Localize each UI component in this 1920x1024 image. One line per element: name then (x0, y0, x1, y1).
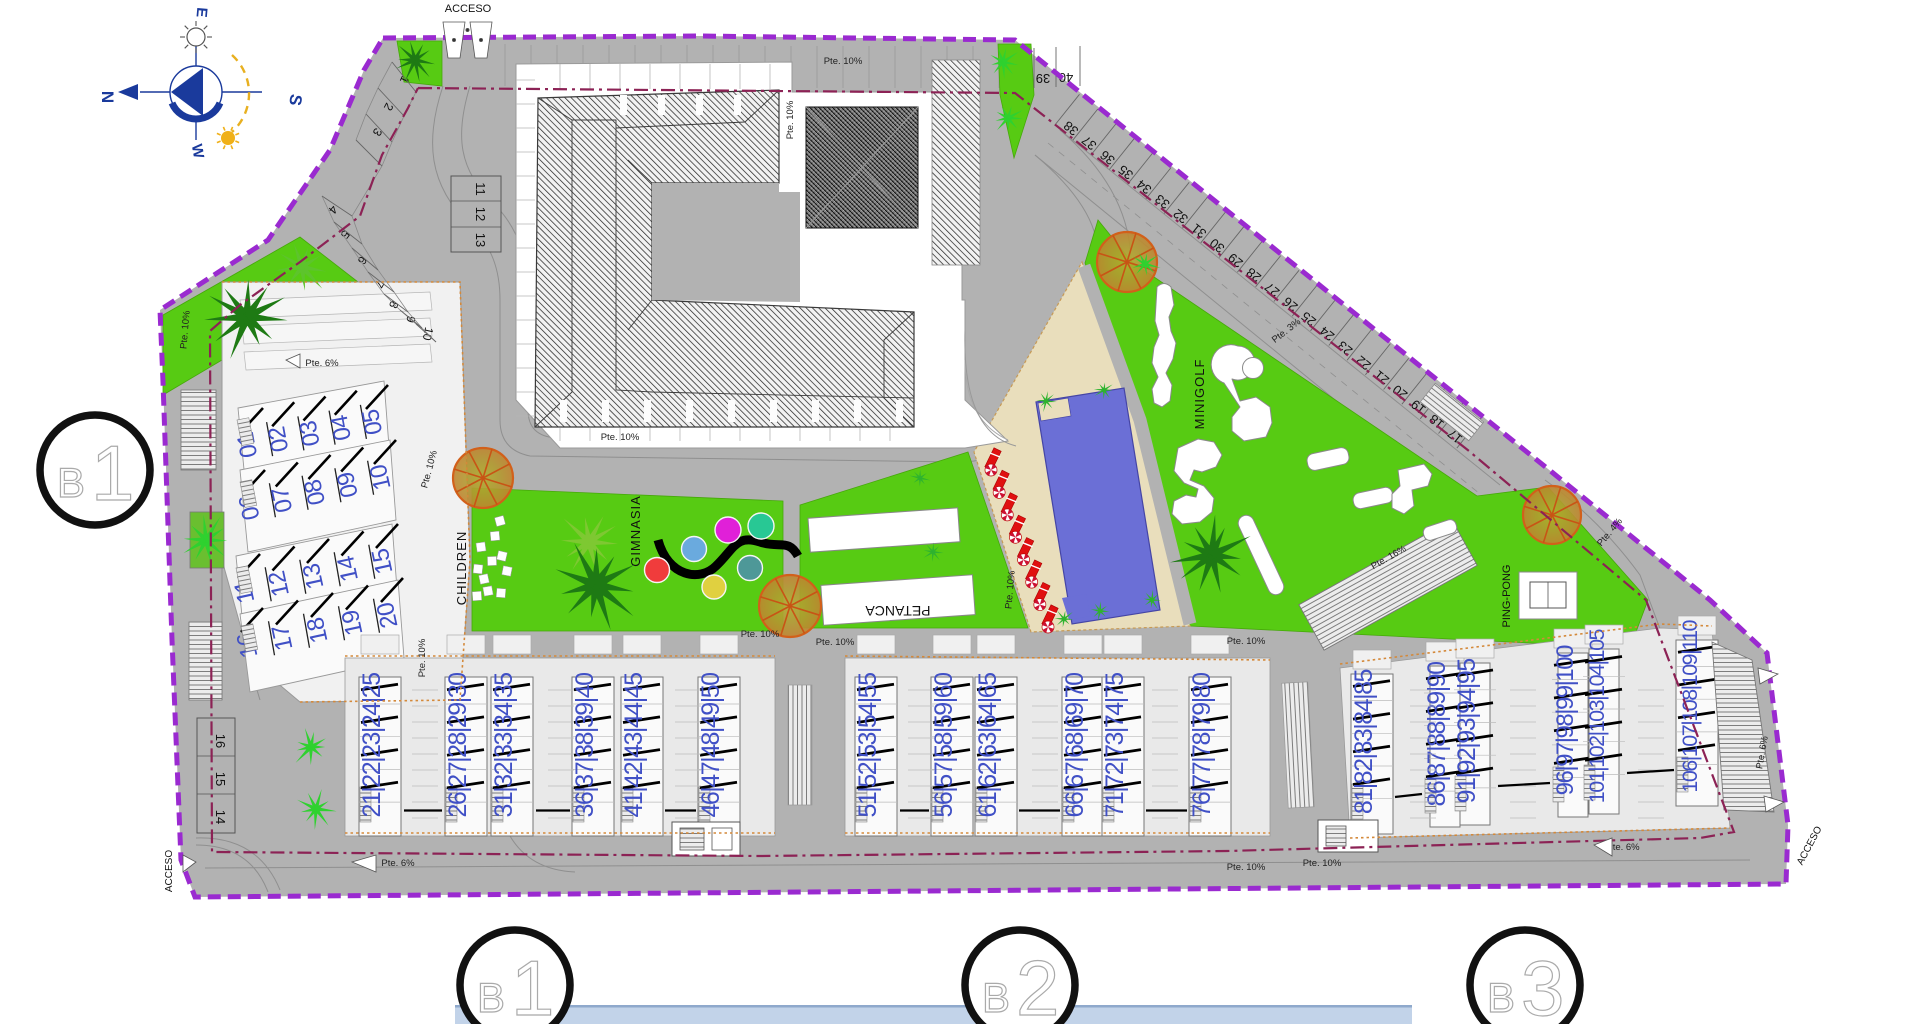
svg-text:Pte. 10%: Pte. 10% (417, 638, 428, 677)
svg-text:86|87|88|89|90: 86|87|88|89|90 (1423, 662, 1451, 807)
svg-text:16: 16 (213, 734, 228, 748)
svg-text:101|102|103|104|105: 101|102|103|104|105 (1585, 628, 1609, 803)
svg-text:Pte. 10%: Pte. 10% (824, 56, 863, 67)
svg-text:B: B (57, 459, 85, 506)
svg-text:CHILDREN: CHILDREN (454, 531, 469, 605)
svg-text:21|22|23|24|25: 21|22|23|24|25 (358, 673, 386, 818)
svg-text:3: 3 (1521, 944, 1564, 1024)
svg-text:26|27|28|29|30: 26|27|28|29|30 (444, 673, 472, 818)
svg-text:ACCESO: ACCESO (164, 850, 175, 892)
svg-text:ACCESO: ACCESO (445, 3, 492, 15)
svg-text:W: W (188, 143, 207, 161)
svg-text:61|62|63|64|65: 61|62|63|64|65 (974, 673, 1002, 818)
svg-text:B: B (477, 974, 505, 1021)
svg-text:15: 15 (213, 772, 228, 786)
svg-text:E: E (193, 7, 211, 18)
svg-text:GIMNASIA: GIMNASIA (628, 495, 643, 567)
svg-text:Pte. 10%: Pte. 10% (785, 100, 796, 139)
svg-text:96|97|98|99|100: 96|97|98|99|100 (1552, 645, 1579, 795)
svg-text:B: B (1487, 974, 1515, 1021)
svg-text:51|52|53|54|55: 51|52|53|54|55 (854, 673, 882, 818)
svg-text:Pte. 6%: Pte. 6% (381, 858, 415, 869)
svg-text:Pte. 10%: Pte. 10% (1227, 862, 1266, 873)
svg-text:14: 14 (213, 810, 228, 824)
svg-text:Pte. 10%: Pte. 10% (1227, 636, 1266, 647)
svg-text:31|32|33|34|35: 31|32|33|34|35 (490, 673, 518, 818)
svg-text:S: S (285, 93, 306, 107)
svg-text:91|92|93|94|95: 91|92|93|94|95 (1453, 659, 1481, 804)
svg-text:39: 39 (1036, 71, 1050, 86)
svg-text:Pte. 10%: Pte. 10% (601, 432, 640, 443)
svg-text:106|107|108|109|110: 106|107|108|109|110 (1678, 619, 1702, 792)
svg-text:76|77|78|79|80: 76|77|78|79|80 (1188, 673, 1216, 818)
svg-text:ACCESO: ACCESO (1795, 824, 1825, 867)
svg-text:N: N (98, 91, 117, 103)
svg-text:66|67|68|69|70: 66|67|68|69|70 (1061, 673, 1089, 818)
svg-text:71|72|73|74|75: 71|72|73|74|75 (1101, 673, 1129, 818)
svg-text:41|42|43|44|45: 41|42|43|44|45 (620, 673, 648, 818)
svg-text:12: 12 (473, 207, 488, 221)
svg-text:13: 13 (473, 233, 488, 247)
svg-text:2: 2 (1016, 944, 1059, 1024)
svg-text:PETANCA: PETANCA (865, 603, 931, 619)
svg-text:1: 1 (511, 944, 554, 1024)
svg-text:MINIGOLF: MINIGOLF (1192, 359, 1207, 430)
svg-text:11: 11 (473, 182, 488, 196)
svg-text:PING-PONG: PING-PONG (1501, 565, 1513, 628)
svg-text:36|37|38|39|40: 36|37|38|39|40 (571, 673, 599, 818)
svg-text:Pte. 6%: Pte. 6% (305, 358, 339, 369)
svg-text:B: B (982, 974, 1010, 1021)
svg-text:81|82|83|84|85: 81|82|83|84|85 (1350, 669, 1378, 814)
svg-text:46|47|48|49|50: 46|47|48|49|50 (697, 673, 725, 818)
svg-text:56|57|58|59|60: 56|57|58|59|60 (930, 673, 958, 818)
svg-text:Pte. 10%: Pte. 10% (741, 629, 780, 640)
svg-text:1: 1 (91, 429, 134, 517)
svg-text:Pte. 10%: Pte. 10% (1303, 858, 1342, 869)
svg-text:Pte. 10%: Pte. 10% (816, 637, 855, 648)
